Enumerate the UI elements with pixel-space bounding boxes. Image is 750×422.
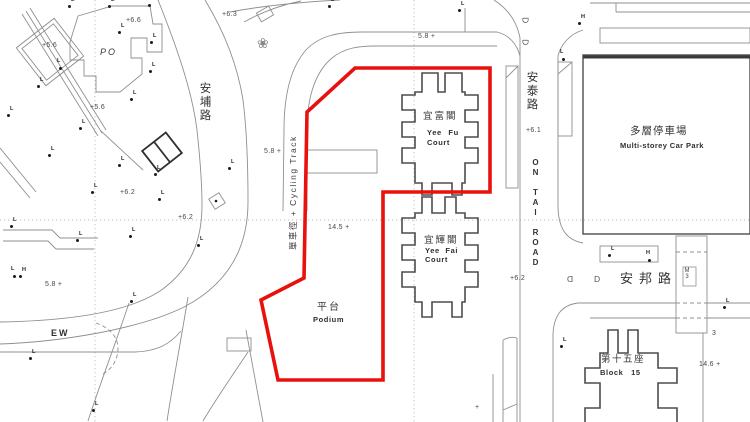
spot-height: +6.6 [126,17,141,24]
lamp-marker: L [10,225,13,228]
yee-fu-court-label-en2: Court [427,139,450,147]
spot-height: +6.2 [178,214,193,221]
cycling-track-label: 單車徑 + Cycling Track [289,135,298,250]
lamp-marker: L [29,357,32,360]
road-d-symbol: D [521,17,530,23]
lamp-marker: L [59,67,62,70]
lamp-marker: L [148,4,151,7]
retaining-wall [22,8,143,170]
lamp-marker: L [562,58,565,61]
spot-height: +6.3 [222,11,237,18]
lamp-marker: L [37,85,40,88]
lamp-marker: L [118,31,121,34]
lamp-marker: L [149,70,152,73]
lamp-marker: L [608,254,611,257]
top-road-curves [230,0,465,32]
hydrant-marker: H [19,275,22,278]
lamp-marker: L [158,198,161,201]
carpark-north-structures [583,3,750,234]
road-d-symbol: D [521,39,530,45]
lamp-marker: L [92,409,95,412]
podium-label-cn: 平台 [317,303,341,313]
yee-fai-court-label-cn: 宜輝閣 [424,236,459,246]
carpark-label-en: Multi-storey Car Park [620,142,704,150]
lamp-marker: L [48,154,51,157]
road-d-symbol: D [594,274,600,284]
block-15-label-en: Block 15 [600,369,641,377]
lamp-marker: L [723,306,726,309]
spot-height: 5.8 + [45,281,62,288]
lamp-marker: L [13,275,16,278]
yee-fu-court-label-cn: 宜富閣 [423,112,458,122]
hydrant-marker: H [648,259,651,262]
footbridge-m3-label: M3 [684,268,690,280]
lamp-marker: L [197,244,200,247]
road-label-on-po: 安埔路 [198,82,210,123]
spot-height: 14.5 + [328,224,349,231]
terrace-steps [0,148,98,249]
road-diagonals [88,297,263,422]
lamp-marker: L [328,5,331,8]
hydrant-marker: H [578,22,581,25]
lamp-marker: L [7,114,10,117]
spot-height: +5.6 [42,42,57,49]
lamp-marker: L [150,41,153,44]
road-on-po-edges [0,0,248,344]
spot-height: 3 [712,330,716,337]
road-label-on-tai-cn: 安泰路 [525,71,537,112]
block-15-label-cn: 第十五座 [601,355,645,365]
po-label: PO [100,48,117,57]
lamp-marker: L [560,345,563,348]
lamp-marker: L [129,235,132,238]
carpark-north-strip [600,28,750,43]
road-d-symbol: D [567,275,573,284]
lamp-marker: L [91,191,94,194]
tilted-terrace [16,18,83,85]
lamp-marker: L [118,164,121,167]
yee-fai-court-label-en2: Court [425,256,448,264]
site-plan-map: PO EW 安埔路 安泰路 ON TAI ROAD 安邦路 單車徑 + Cycl… [0,0,750,422]
tree-icon: ❀ [257,36,269,50]
lamp-marker: L [130,98,133,101]
dark-building [142,133,182,172]
spot-height: 5.8 + [418,33,435,40]
spot-height: 5.8 + [264,148,281,155]
spot-height: +6.2 [120,189,135,196]
lamp-marker: L [108,5,111,8]
footbridge-m3 [676,236,707,333]
road-label-on-tai-en: ON TAI ROAD [531,158,539,268]
road-label-on-pong: 安邦路 [620,272,677,285]
podium-label-en: Podium [313,316,344,324]
ew-label: EW [51,329,70,338]
lamp-marker: L [130,300,133,303]
spot-height: +6.2 [510,275,525,282]
spot-height: +5.6 [90,104,105,111]
spot-height: + [475,404,479,411]
link-structure [307,150,377,173]
lamp-marker: L [458,9,461,12]
spot-height: 14.6 + [699,361,720,368]
carpark-label-cn: 多層停車場 [630,126,688,137]
yee-fu-court-label-en1: Yee Fu [427,129,459,137]
yee-fai-court-label-en1: Yee Fai [425,247,458,255]
lamp-marker: L [68,5,71,8]
lamp-marker: L [79,127,82,130]
spot-height: +6.1 [526,127,541,134]
lamp-marker: L [154,173,157,176]
lamp-marker: L [76,239,79,242]
lamp-marker: L [228,167,231,170]
